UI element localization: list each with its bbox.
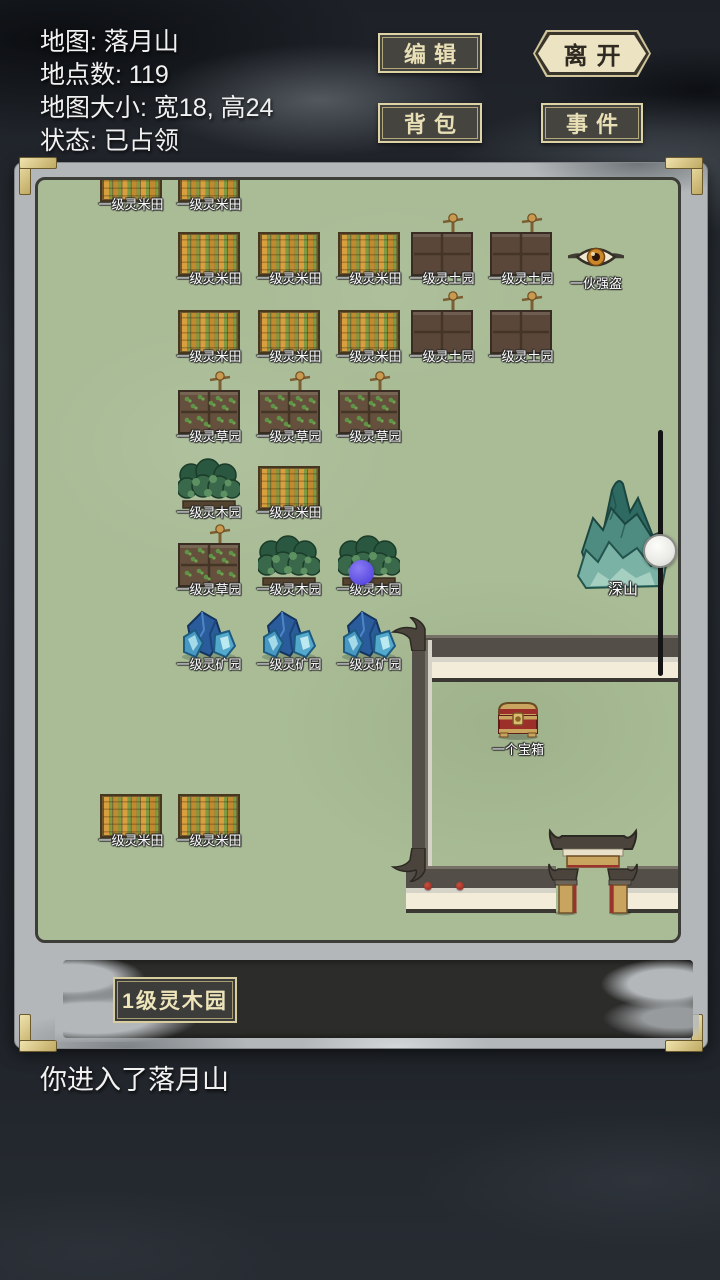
map-tile-grass[interactable]: [178, 370, 240, 434]
tile-label: 一级灵草园: [256, 429, 321, 444]
tile-label: 一级灵米田: [256, 505, 321, 520]
tile-label: 一级灵米田: [176, 833, 241, 848]
gate-structure-icon: [548, 828, 638, 916]
tile-label: 一级灵矿园: [256, 657, 321, 672]
map-tile-chest[interactable]: [494, 700, 542, 740]
backpack-button-label: 背包: [404, 107, 464, 139]
map-tile-rice[interactable]: [338, 308, 400, 354]
player-marker: [349, 560, 374, 585]
info-location-count: 地点数: 119: [40, 59, 273, 92]
tile-label: 一级灵草园: [176, 429, 241, 444]
map-tile-grass[interactable]: [338, 370, 400, 434]
wall-bottom-left: [406, 866, 556, 913]
map-tile-rice[interactable]: [178, 792, 240, 838]
tile-label: 一级灵米田: [176, 271, 241, 286]
wall-left: [412, 640, 432, 872]
tile-label: 一伙强盗: [570, 276, 622, 291]
ink-wash-decor: [549, 956, 699, 1042]
map-tile-mine[interactable]: [178, 610, 240, 662]
tile-label: 一级灵木园: [256, 582, 321, 597]
tile-label: 一级灵草园: [176, 582, 241, 597]
tile-label: 一级灵土园: [488, 271, 553, 286]
tile-label: 一级灵米田: [98, 833, 163, 848]
frame-corner-ornament: [19, 1016, 55, 1052]
event-button[interactable]: 事件: [541, 103, 643, 143]
map-tile-soil[interactable]: [490, 290, 552, 354]
tile-label: 深山: [608, 582, 638, 597]
selected-tile-button[interactable]: 1级灵木园: [113, 977, 237, 1023]
tile-label: 一级灵草园: [336, 429, 401, 444]
wall-eave-icon: [390, 617, 426, 651]
tile-label: 一级灵土园: [409, 349, 474, 364]
edit-button[interactable]: 编辑: [378, 33, 482, 73]
tile-label: 一级灵土园: [409, 271, 474, 286]
backpack-button[interactable]: 背包: [378, 103, 482, 143]
map-footer-panel: 1级灵木园: [63, 960, 693, 1038]
map-tile-mountain[interactable]: [576, 472, 670, 592]
map-viewport[interactable]: 一级灵米田一级灵米田一级灵米田一级灵米田一级灵米田 一级灵土园 一级灵土园 一伙…: [35, 177, 681, 943]
map-tile-rice[interactable]: [258, 464, 320, 510]
tile-label: 一级灵米田: [256, 349, 321, 364]
tile-label: 一级灵土园: [488, 349, 553, 364]
map-tile-mine[interactable]: [258, 610, 320, 662]
map-tile-rice[interactable]: [338, 230, 400, 276]
tile-label: 一级灵矿园: [336, 657, 401, 672]
map-tile-rice[interactable]: [178, 230, 240, 276]
map-tile-soil[interactable]: [411, 290, 473, 354]
tile-label: 一级灵米田: [336, 271, 401, 286]
tile-label: 一级灵米田: [256, 271, 321, 286]
tile-label: 一级灵木园: [336, 582, 401, 597]
lantern-dot: [424, 882, 432, 890]
leave-button-face: 离开: [538, 35, 646, 72]
map-scrollbar-handle[interactable]: [643, 534, 677, 568]
tile-label: 一级灵米田: [176, 197, 241, 212]
log-message: 你进入了落月山: [40, 1058, 229, 1097]
map-tile-rice[interactable]: [178, 308, 240, 354]
map-tile-grass[interactable]: [178, 523, 240, 587]
lantern-dot: [456, 882, 464, 890]
info-map-name: 地图: 落月山: [40, 26, 273, 59]
leave-button-label: 离开: [564, 36, 630, 71]
tile-label: 一个宝箱: [492, 742, 544, 757]
tile-label: 一级灵木园: [176, 505, 241, 520]
map-tile-wood[interactable]: [258, 533, 320, 587]
map-tile-grass[interactable]: [258, 370, 320, 434]
edit-button-label: 编辑: [404, 37, 464, 69]
map-tile-rice[interactable]: [258, 230, 320, 276]
wall-top: [412, 635, 681, 682]
map-tile-rice[interactable]: [258, 308, 320, 354]
map-tile-wood[interactable]: [178, 456, 240, 510]
map-tile-bandit[interactable]: [568, 242, 624, 272]
info-map-size: 地图大小: 宽18, 高24: [40, 92, 273, 125]
map-tile-rice[interactable]: [100, 792, 162, 838]
tile-label: 一级灵米田: [98, 197, 163, 212]
tile-label: 一级灵米田: [336, 349, 401, 364]
leave-button[interactable]: 离开: [533, 30, 651, 77]
map-tile-soil[interactable]: [490, 212, 552, 276]
info-status: 状态: 已占领: [40, 125, 273, 158]
map-info-panel: 地图: 落月山 地点数: 119 地图大小: 宽18, 高24 状态: 已占领: [40, 26, 273, 158]
map-tile-soil[interactable]: [411, 212, 473, 276]
wall-eave-icon: [390, 848, 426, 882]
game-screen: 地图: 落月山 地点数: 119 地图大小: 宽18, 高24 状态: 已占领 …: [0, 0, 720, 1280]
map-frame: 一级灵米田一级灵米田一级灵米田一级灵米田一级灵米田 一级灵土园 一级灵土园 一伙…: [15, 163, 707, 1048]
tile-label: 一级灵矿园: [176, 657, 241, 672]
event-button-label: 事件: [566, 107, 626, 139]
tile-label: 一级灵米田: [176, 349, 241, 364]
